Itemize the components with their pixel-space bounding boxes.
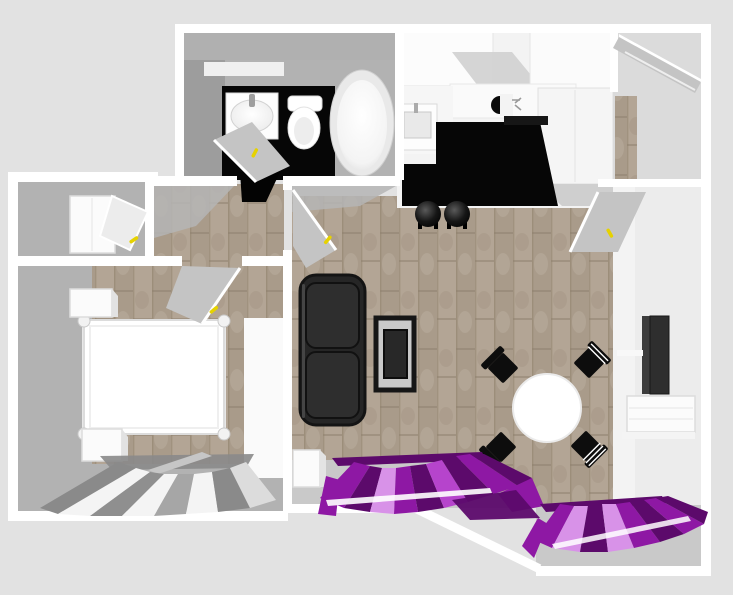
kitchen [397,32,613,208]
upper-cabinets-right[interactable] [530,32,613,90]
bar-stool-left[interactable] [415,201,441,229]
round-dining-table[interactable] [513,374,581,442]
stool-seat [415,201,441,227]
side-cabinet-top [293,450,320,487]
tv-side-face [642,316,650,394]
wall-bathroom-left [175,24,184,184]
coffee-table[interactable] [376,318,414,390]
tv-stand-ledge [622,432,695,439]
sofa-cushion-top [306,283,359,348]
tv-stand[interactable] [622,396,695,439]
wall-bedroom-top-right [242,256,290,266]
toilet-seat [294,117,314,145]
stool-seat [444,201,470,227]
wall-bathroom-bottom-right [284,176,400,186]
sink-faucet [414,103,418,113]
entry-carpet-strip [615,96,637,180]
cooktop-mask [500,94,513,116]
wall-shelf-small [617,350,643,356]
sofa[interactable] [300,275,365,425]
bed-mattress [84,320,224,434]
toilet[interactable] [288,96,322,149]
nightstand-body [70,289,112,317]
bedroom-wall-face [244,318,283,478]
tv-stand-body [627,396,695,432]
floorplan-scene[interactable] [0,0,733,595]
wall-left-outer [8,172,18,521]
bed-post [218,315,230,327]
wall-living-left [283,250,292,510]
wall-bottom-right [536,566,711,576]
floorplan-3d-viewport[interactable] [0,0,733,595]
tv[interactable] [650,316,669,394]
wall-living-left-stub [283,176,292,190]
sofa-cushion-bottom [306,352,359,418]
wall-bathroom-kitchen-divider [395,28,404,180]
wall-right-outer [701,24,711,576]
wall-closet-top [8,172,158,182]
wall-bathroom-bottom-left [145,176,237,186]
bathtub-basin [337,80,387,170]
sofa-highlight [302,284,305,418]
wall-shelf[interactable] [204,62,284,76]
sink-bowl [404,112,431,138]
wall-entry-mid [598,179,710,187]
side-cabinet[interactable] [293,450,326,487]
wall-bedroom-top-left [8,256,182,266]
four-poster-bed[interactable] [78,315,230,440]
nightstand-top[interactable] [70,289,118,317]
bar-stool-right[interactable] [444,201,470,229]
wall-top [175,24,710,33]
bathtub[interactable] [330,70,394,176]
bathroom [183,32,397,180]
bed-post [218,428,230,440]
coffee-table-top [384,330,407,378]
wall-closet-right [145,176,154,262]
oven-front[interactable] [504,116,548,125]
washbasin-faucet [249,94,255,107]
wall-kitchen-entry-divider [610,28,618,92]
bathroom-top-wall-face [183,32,397,60]
kitchen-sink[interactable] [399,103,437,150]
